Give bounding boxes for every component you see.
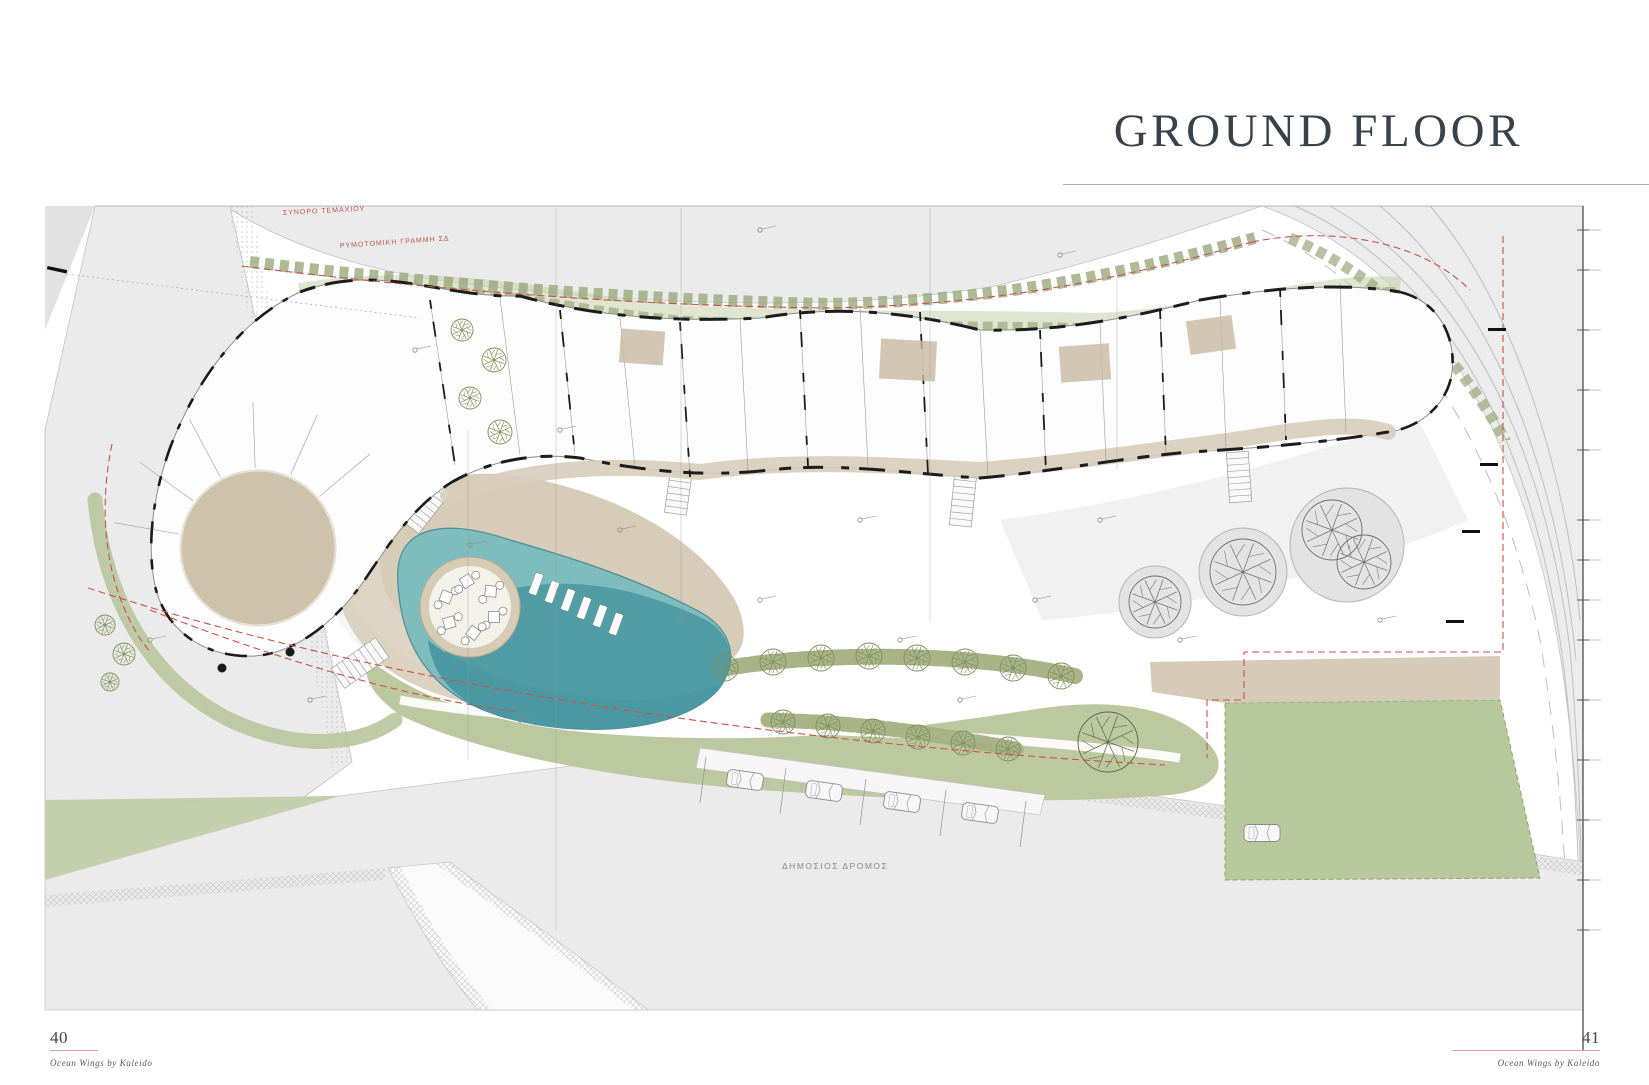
brand-script-right: Ocean Wings by Kaleido [1300, 1058, 1600, 1068]
label-public-road: ΔΗΜΟΣΙΟΣ ΔΡΟΜΟΣ [782, 861, 888, 871]
site-plan: ΣΥΝΟΡΟ ΤΕΜΑΧΙΟΥ ΡΥΜΟΤΟΜΙΚΗ ΓΡΑΜΜΗ ΣΔ ΔΗΜ… [0, 0, 1649, 1080]
footer-left: 40 Ocean Wings by Kaleido [50, 1028, 350, 1068]
lawn-parcel [1225, 700, 1540, 880]
page-number-left: 40 [50, 1028, 68, 1048]
brand-script-left: Ocean Wings by Kaleido [50, 1058, 350, 1068]
page-number-right-rule [1452, 1050, 1600, 1051]
site-plan-container: ΣΥΝΟΡΟ ΤΕΜΑΧΙΟΥ ΡΥΜΟΤΟΜΙΚΗ ΓΡΑΜΜΗ ΣΔ ΔΗΜ… [0, 0, 1649, 1080]
page-number-right: 41 [1582, 1028, 1600, 1048]
footer-right: 41 Ocean Wings by Kaleido [1300, 1028, 1600, 1068]
page-number-left-rule [50, 1050, 98, 1051]
